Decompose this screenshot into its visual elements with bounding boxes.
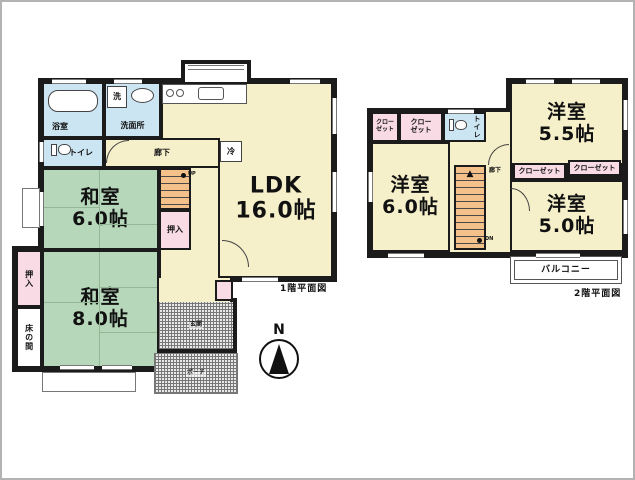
- f2-room-ne: 洋室 5.5帖: [510, 82, 624, 165]
- f2-closet-mid-west: クローゼット: [513, 163, 566, 180]
- tatami-line: [100, 332, 157, 333]
- floor-plan-canvas: 浴室 洗面所 トイレ 廊下 押入 和室 6.0帖 和室 8.0帖 押入 床の間 …: [0, 0, 635, 480]
- toilet-label: トイレ: [473, 115, 481, 139]
- closet-west-label: 押入: [24, 270, 33, 288]
- tatami-line: [100, 287, 157, 288]
- window-icon: [39, 192, 44, 226]
- window-icon: [114, 79, 142, 84]
- tatami-line: [44, 207, 99, 208]
- f2-closet-mid-east: クローゼット: [568, 160, 621, 176]
- toilet-tank-icon: [51, 144, 57, 156]
- tatami-line: [99, 252, 100, 366]
- f1-shoe-cabinet: [215, 280, 233, 301]
- window-icon: [448, 109, 474, 114]
- window-icon: [332, 98, 337, 134]
- kitchen-sink-icon: [198, 87, 224, 100]
- window-icon: [290, 79, 320, 84]
- floor1-caption: 1階平面図: [280, 284, 327, 294]
- compass: N: [257, 322, 301, 382]
- f2-closet-nw: クロー ゼット: [399, 112, 443, 142]
- f2-room-west: 洋室 6.0帖: [371, 142, 450, 252]
- window-icon: [388, 253, 424, 258]
- toilet-tank-icon: [449, 119, 454, 131]
- closet-label: クロー ゼット: [411, 119, 432, 134]
- refrigerator-label: 冷: [227, 147, 235, 156]
- washbasin-icon: [131, 88, 154, 103]
- window-icon: [102, 365, 132, 370]
- toilet-bowl-icon: [58, 144, 71, 155]
- refrigerator-icon: 冷: [220, 141, 242, 162]
- toilet-bowl-icon: [455, 120, 467, 130]
- toilet-label: トイレ: [69, 148, 93, 157]
- stairs-up-label: UP: [188, 172, 196, 178]
- window-icon: [368, 172, 373, 202]
- washing-machine-icon: 洗: [107, 86, 127, 108]
- room-5-0-label: 洋室 5.0帖: [539, 194, 596, 238]
- bathroom-label: 浴室: [52, 122, 68, 131]
- f1-staircase: [159, 168, 191, 210]
- compass-north-label: N: [273, 322, 285, 338]
- porch-label: ポーチ: [186, 370, 206, 377]
- f2-staircase: ▲: [454, 165, 486, 250]
- compass-needle-icon: [269, 344, 289, 374]
- window-icon: [52, 79, 86, 84]
- window-icon: [242, 277, 278, 282]
- window-icon: [39, 142, 44, 162]
- f2-hallway-label: 廊下: [489, 168, 501, 175]
- f1-closet-by-stairs: 押入: [159, 210, 191, 250]
- washitsu-8-label: 和室 8.0帖: [72, 287, 129, 331]
- f1-tokonoma-alcove: 床の間: [16, 307, 42, 368]
- washing-machine-label: 洗: [113, 92, 121, 101]
- compass-circle-icon: [259, 339, 299, 379]
- f1-entrance-genkan: 玄関: [159, 302, 233, 349]
- balcony-label: バルコニー: [541, 265, 591, 275]
- tokonoma-label: 床の間: [24, 324, 33, 351]
- closet-label: クロー ゼット: [376, 120, 394, 133]
- f1-west-bay-window: [22, 188, 40, 228]
- f1-porch: ポーチ: [154, 353, 238, 394]
- stairs-down-label: DN: [485, 237, 493, 243]
- window-icon: [536, 253, 580, 258]
- window-icon: [332, 172, 337, 212]
- room-6-0-label: 洋室 6.0帖: [382, 175, 439, 219]
- f2-room-se: 洋室 5.0帖: [510, 180, 624, 252]
- stove-burner-icon: [166, 89, 174, 97]
- window-icon: [188, 65, 244, 70]
- window-icon: [572, 79, 600, 84]
- window-icon: [526, 79, 554, 84]
- f2-balcony: バルコニー: [510, 256, 622, 284]
- f2-closet-nw-small: クロー ゼット: [371, 112, 399, 142]
- genkan-label: 玄関: [189, 322, 203, 329]
- window-icon: [60, 365, 94, 370]
- f1-washitsu-6-room: 和室 6.0帖: [42, 168, 159, 250]
- f1-washitsu-8-room: 和室 8.0帖: [42, 250, 159, 368]
- ldk-label: LDK 16.0帖: [235, 174, 316, 225]
- bathtub-icon: [48, 90, 98, 112]
- closet-label: クローゼット: [574, 164, 616, 172]
- washroom-label: 洗面所: [121, 121, 145, 130]
- stove-burner-icon: [176, 89, 184, 97]
- tatami-line: [44, 302, 99, 303]
- room-5-5-label: 洋室 5.5帖: [539, 102, 596, 146]
- f1-veranda: [42, 372, 136, 392]
- floor2-caption: 2階平面図: [574, 289, 621, 299]
- window-icon: [623, 100, 628, 130]
- stairs-down-dot: [477, 238, 482, 243]
- closet-label: 押入: [167, 225, 183, 234]
- closet-label: クローゼット: [519, 167, 561, 175]
- tatami-line: [100, 224, 157, 225]
- stairs-up-arrow-icon: ▲: [467, 169, 474, 179]
- f1-closet-west: 押入: [16, 250, 42, 307]
- window-icon: [623, 200, 628, 234]
- stairs-up-dot: [181, 173, 186, 178]
- hallway-label: 廊下: [154, 148, 170, 157]
- tatami-line: [99, 170, 100, 248]
